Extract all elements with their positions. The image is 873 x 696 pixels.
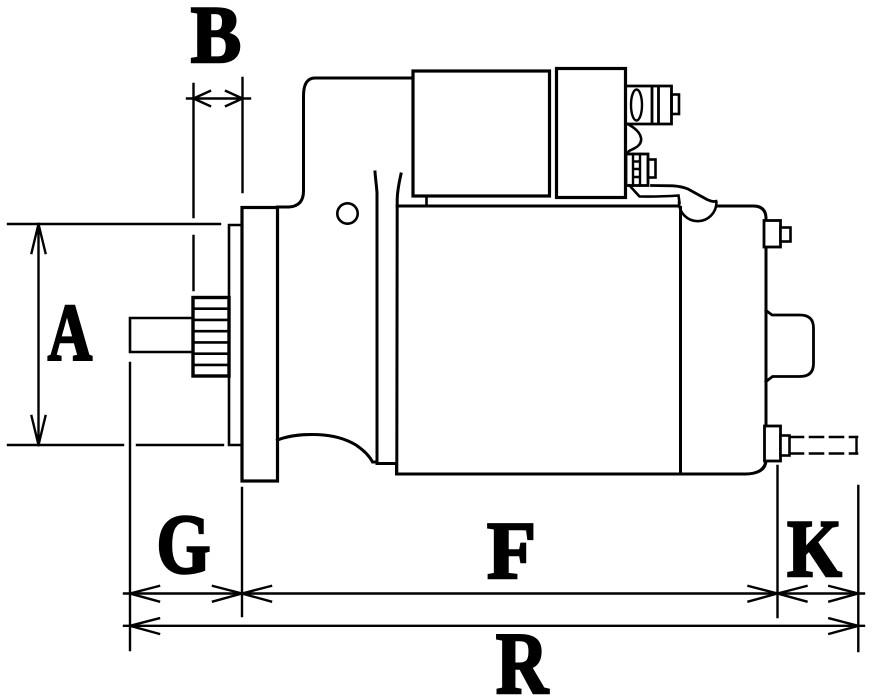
svg-text:B: B — [191, 0, 241, 81]
svg-text:G: G — [156, 497, 210, 591]
svg-text:A: A — [48, 286, 92, 378]
svg-text:R: R — [496, 615, 549, 696]
svg-text:F: F — [487, 505, 536, 596]
svg-text:K: K — [787, 503, 842, 594]
